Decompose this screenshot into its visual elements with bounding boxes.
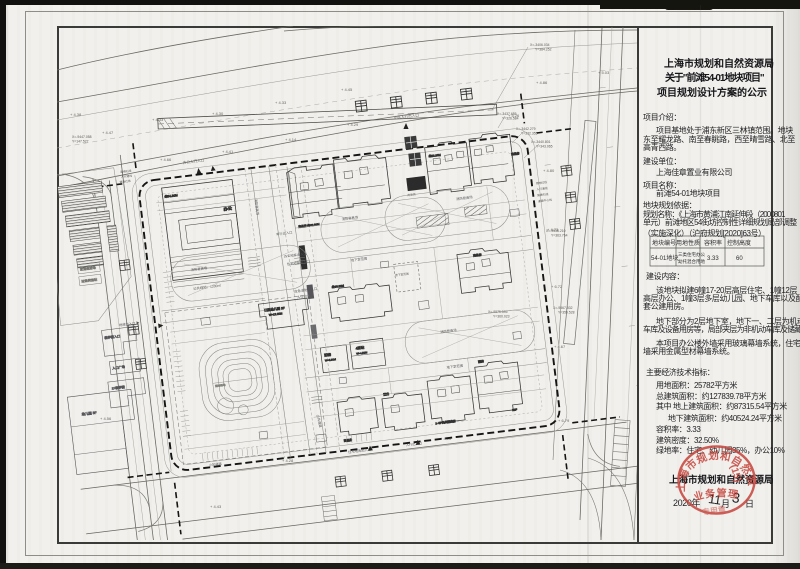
svg-text:+ 4.45: + 4.45 [341, 87, 353, 92]
svg-text:+ 4.86: + 4.86 [536, 80, 548, 85]
svg-text:幼儿园 3F: 幼儿园 3F [81, 410, 97, 417]
svg-text:用地红线: 用地红线 [536, 180, 548, 185]
svg-text:X=-3442.279: X=-3442.279 [516, 127, 536, 131]
svg-text:地下室范围: 地下室范围 [395, 272, 410, 278]
svg-text:+ 4.29: + 4.29 [347, 122, 359, 127]
svg-text:+ 4.80: + 4.80 [543, 168, 555, 173]
svg-text:住宅地库出入口: 住宅地库出入口 [348, 447, 372, 455]
svg-text:道路中心线: 道路中心线 [538, 198, 553, 204]
svg-text:1F教学楼: 1F教学楼 [111, 384, 126, 391]
svg-text:+ 5.03: + 5.03 [598, 70, 610, 75]
svg-text:+ 4.33: + 4.33 [275, 100, 287, 105]
svg-text:公共绿地：1200㎡: 公共绿地：1200㎡ [193, 283, 222, 291]
svg-text:教学楼入口: 教学楼入口 [104, 333, 120, 340]
svg-text:容积率: 容积率 [704, 239, 722, 247]
svg-text:X=-9447.058: X=-9447.058 [72, 135, 92, 139]
svg-text:Y=332.355: Y=332.355 [521, 132, 538, 136]
svg-text:X=-9558.210: X=-9558.210 [546, 229, 566, 233]
svg-text:消防登高场: 消防登高场 [190, 265, 208, 272]
svg-text:消防登高场: 消防登高场 [440, 327, 458, 334]
svg-text:入口广场: 入口广场 [112, 364, 125, 371]
svg-text:Y=360.023: Y=360.023 [493, 315, 510, 319]
svg-text:消防登高场: 消防登高场 [254, 198, 261, 216]
svg-text:W=12.30M: W=12.30M [269, 311, 284, 317]
svg-text:消防登高场: 消防登高场 [456, 194, 474, 201]
svg-text:Y=359.528: Y=359.528 [558, 311, 575, 315]
svg-text:+ 4.47: + 4.47 [102, 130, 114, 135]
svg-text:Y=384.252: Y=384.252 [535, 48, 552, 52]
svg-text:地下室范围: 地下室范围 [350, 256, 368, 263]
svg-text:路缘石线: 路缘石线 [537, 192, 549, 197]
svg-text:商品房: 商品房 [344, 438, 353, 443]
svg-text:60: 60 [736, 256, 743, 262]
svg-text:商品房: 商品房 [511, 151, 520, 156]
svg-text:垃圾转运站: 垃圾转运站 [81, 277, 98, 284]
svg-text:4型站: 4型站 [355, 345, 365, 351]
svg-text:+ 4.38: + 4.38 [70, 112, 82, 117]
svg-text:商品房: 商品房 [473, 253, 482, 258]
svg-text:专用章: 专用章 [701, 504, 726, 517]
svg-text:约53.80M: 约53.80M [428, 153, 441, 159]
svg-text:+ 4.30: + 4.30 [212, 111, 224, 116]
svg-text:54-01地块: 54-01地块 [651, 254, 678, 262]
svg-text:配套: 配套 [478, 359, 484, 364]
svg-text:约54.30M: 约54.30M [164, 192, 178, 199]
svg-text:W=3.50M: W=3.50M [325, 357, 337, 362]
svg-text:20F: 20F [512, 407, 518, 412]
svg-text:X=-9567.532: X=-9567.532 [553, 306, 573, 310]
svg-text:消防登高场: 消防登高场 [341, 214, 359, 221]
svg-text:配套: 配套 [324, 352, 332, 358]
svg-text:幼托混合用地: 幼托混合用地 [678, 258, 705, 265]
svg-text:办公人行入口: 办公人行入口 [183, 157, 205, 165]
svg-text:+ 4.56: + 4.56 [100, 416, 112, 421]
svg-text:地下室范围: 地下室范围 [446, 363, 464, 370]
svg-text:X=-3406.034: X=-3406.034 [530, 43, 550, 47]
svg-text:X=-3437.655: X=-3437.655 [497, 112, 517, 116]
svg-text:+ 6.79: + 6.79 [558, 418, 570, 423]
svg-text:道路红线: 道路红线 [119, 179, 131, 184]
svg-text:+ 4.43: + 4.43 [210, 504, 222, 509]
svg-text:1~5F公共配套房: 1~5F公共配套房 [435, 419, 456, 425]
svg-text:约63.80M: 约63.80M [332, 284, 345, 290]
svg-text:Y=363.764: Y=363.764 [551, 234, 568, 238]
svg-text:W=4.50M: W=4.50M [356, 350, 368, 355]
svg-text:应急消防出入口: 应急消防出入口 [294, 286, 318, 294]
svg-text:地道出入口 ▶: 地道出入口 ▶ [119, 320, 141, 328]
svg-text:+ 4.14: + 4.14 [285, 137, 297, 142]
svg-text:Y=147.527: Y=147.527 [72, 140, 89, 144]
svg-text:+ 4.67: + 4.67 [554, 344, 566, 349]
svg-text:人行道线: 人行道线 [536, 186, 548, 191]
svg-text:车行出入口: 车行出入口 [276, 230, 293, 237]
svg-text:+ 4.41: + 4.41 [222, 149, 234, 154]
svg-text:Y=343.065: Y=343.065 [536, 145, 553, 149]
svg-text:业务管理: 业务管理 [692, 486, 739, 503]
svg-text:+ 4.66: + 4.66 [160, 157, 172, 162]
svg-text:(15): (15) [727, 463, 743, 483]
svg-text:人行道线: 人行道线 [121, 174, 133, 179]
svg-text:三类住宅办公: 三类住宅办公 [678, 251, 705, 258]
svg-text:用地性质: 用地性质 [676, 239, 700, 247]
svg-text:+ 4.28: + 4.28 [282, 458, 294, 463]
svg-text:+ 6.72: + 6.72 [551, 284, 563, 289]
svg-text:地块编号: 地块编号 [652, 239, 676, 247]
svg-text:控制高度: 控制高度 [727, 239, 751, 247]
svg-text:+ 4.33: + 4.33 [152, 117, 164, 122]
svg-text:3.33: 3.33 [707, 256, 719, 262]
